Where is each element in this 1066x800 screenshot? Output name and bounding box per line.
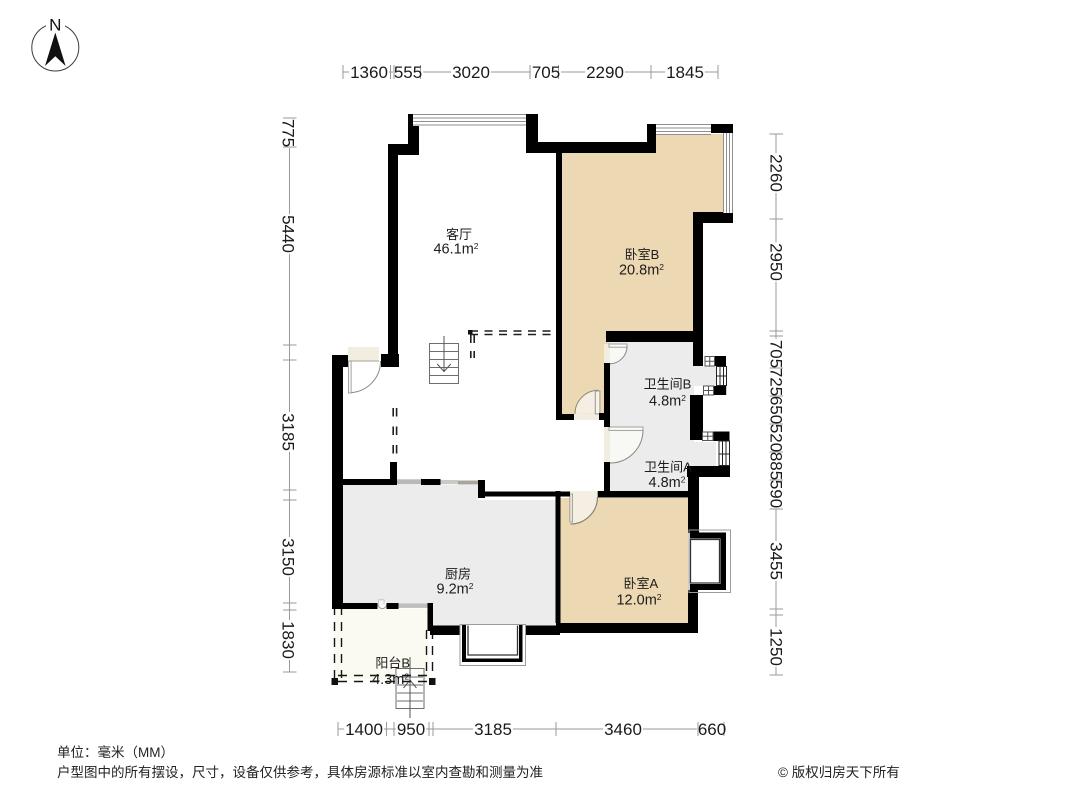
svg-text:N: N	[49, 16, 61, 35]
svg-text:3020: 3020	[452, 63, 490, 82]
svg-text:4.3m2: 4.3m2	[372, 672, 409, 689]
svg-text:3455: 3455	[767, 542, 786, 580]
svg-text:950: 950	[397, 720, 425, 739]
svg-text:厨房: 厨房	[445, 567, 471, 582]
svg-text:650: 650	[767, 396, 786, 424]
svg-text:3460: 3460	[604, 720, 642, 739]
svg-text:2290: 2290	[586, 63, 624, 82]
svg-text:3185: 3185	[474, 720, 512, 739]
svg-text:单位：毫米（MM）: 单位：毫米（MM）	[57, 744, 174, 760]
svg-text:阳台B: 阳台B	[375, 656, 410, 671]
svg-text:1400: 1400	[345, 720, 383, 739]
svg-text:885: 885	[767, 452, 786, 480]
svg-text:2950: 2950	[767, 243, 786, 281]
svg-text:705: 705	[767, 340, 786, 368]
svg-text:705: 705	[532, 63, 560, 82]
svg-text:1830: 1830	[279, 621, 298, 659]
svg-text:户型图中的所有摆设，尺寸，设备仅供参考，具体房源标准以室内查: 户型图中的所有摆设，尺寸，设备仅供参考，具体房源标准以室内查勘和测量为准	[57, 764, 543, 780]
svg-text:2260: 2260	[767, 154, 786, 192]
svg-text:46.1m2: 46.1m2	[433, 241, 478, 258]
svg-text:卫生间A: 卫生间A	[644, 460, 692, 475]
svg-text:4.8m2: 4.8m2	[649, 475, 686, 492]
svg-text:3150: 3150	[279, 538, 298, 576]
svg-text:客厅: 客厅	[446, 227, 472, 242]
svg-text:卧室B: 卧室B	[625, 247, 660, 262]
svg-text:590: 590	[767, 480, 786, 508]
svg-text:520: 520	[767, 424, 786, 452]
svg-text:555: 555	[394, 63, 422, 82]
svg-text:© 版权归房天下所有: © 版权归房天下所有	[778, 764, 900, 780]
svg-text:9.2m2: 9.2m2	[437, 581, 474, 598]
svg-text:1360: 1360	[350, 63, 388, 82]
svg-text:5440: 5440	[279, 215, 298, 253]
svg-text:12.0m2: 12.0m2	[616, 592, 661, 609]
svg-text:卧室A: 卧室A	[623, 576, 658, 591]
svg-text:1250: 1250	[767, 628, 786, 666]
svg-text:20.8m2: 20.8m2	[619, 262, 664, 279]
svg-text:660: 660	[698, 720, 726, 739]
svg-text:1845: 1845	[666, 63, 704, 82]
svg-text:卫生间B: 卫生间B	[644, 377, 692, 392]
svg-text:775: 775	[279, 119, 298, 147]
svg-text:3185: 3185	[279, 413, 298, 451]
svg-text:4.8m2: 4.8m2	[649, 393, 686, 410]
svg-text:725: 725	[767, 368, 786, 396]
